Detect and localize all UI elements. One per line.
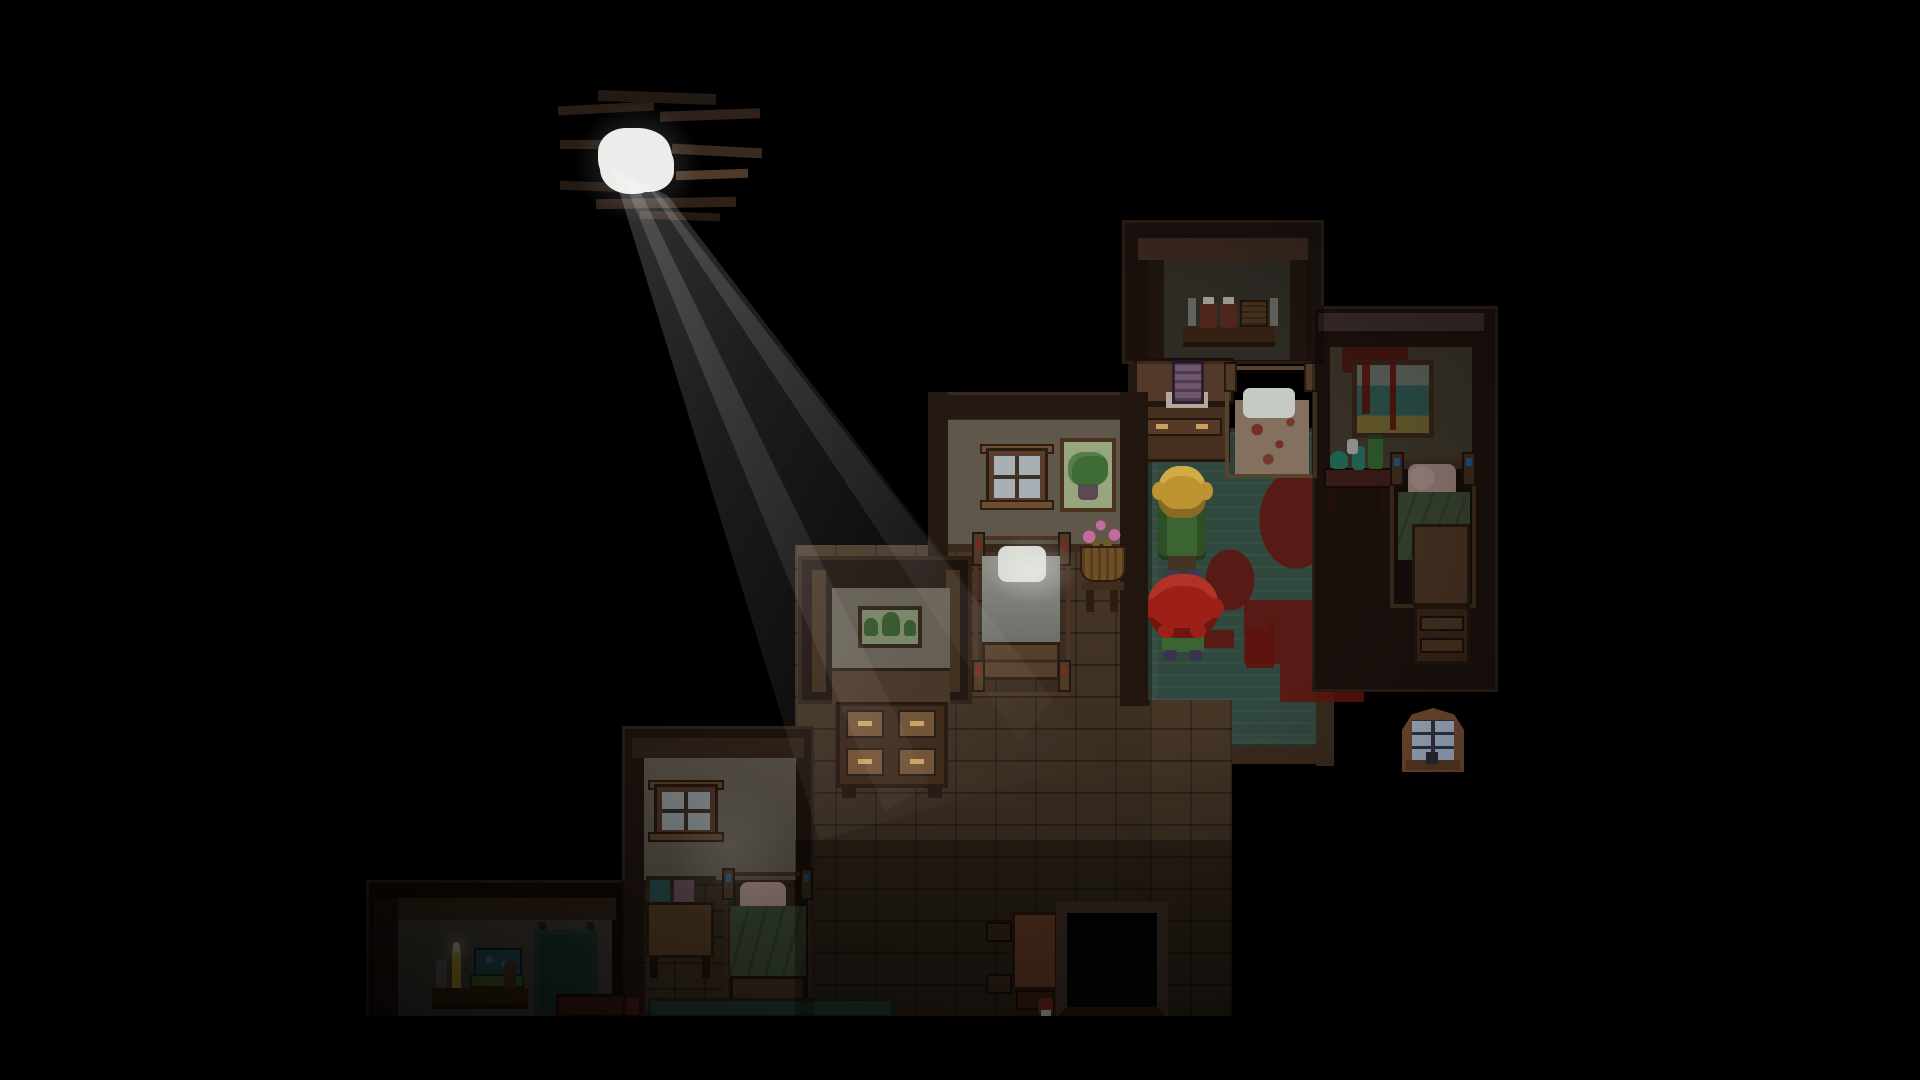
desk-foot-right: [928, 788, 942, 798]
flower-basket: [1080, 546, 1126, 582]
stair-opening: [1056, 902, 1168, 1018]
bloody-bed-post-tr: [1304, 362, 1317, 392]
white-bed-tick-br: [1062, 666, 1067, 675]
red-shoe-right: [1189, 650, 1202, 660]
wall-shelf-board: [1183, 326, 1275, 347]
flower-stand-top: [1082, 582, 1124, 590]
bed-f-tick-tl: [726, 874, 731, 882]
small-red-table: [1012, 912, 1058, 990]
green-bottle-tall: [1368, 435, 1383, 469]
shelf-bottle-right: [504, 962, 516, 988]
carpet-strip: [648, 998, 894, 1018]
towel-table-leg-r: [702, 958, 710, 978]
roof-hole-light: [598, 128, 672, 192]
right-nightstand-drawer-2: [1420, 638, 1464, 653]
alcove-post-left: [812, 570, 826, 692]
bottle-table-leg-l: [1328, 488, 1336, 514]
window-d-sill-bottom: [980, 500, 1054, 510]
window-f-pane: [662, 792, 710, 830]
candle-right: [1270, 298, 1278, 326]
blonde-hair-lump-r: [1199, 482, 1213, 500]
game-viewport[interactable]: [0, 0, 1920, 1080]
bloody-bed-pillow: [1243, 388, 1295, 418]
towel-table-leg-l: [650, 958, 658, 978]
shelf-room-lintel: [1138, 238, 1308, 260]
shelf-bottle-left: [436, 960, 447, 988]
jar-2: [1220, 302, 1237, 328]
desk-handle-1: [858, 721, 872, 726]
purple-picture: [1172, 360, 1204, 404]
room-g-roofband: [376, 898, 616, 920]
shelf-room-post-left: [1148, 260, 1164, 360]
bottle-table-top: [1324, 468, 1392, 488]
white-bed-tick-bl: [976, 666, 981, 675]
carpet-edge-wood-h: [1232, 746, 1334, 764]
jar-1: [1200, 302, 1217, 328]
window-room-post-left: [928, 392, 948, 570]
roof-plank-1: [558, 101, 654, 115]
roof-plank-8: [596, 197, 736, 209]
wall-shelf-small-1: [986, 922, 1012, 942]
right-bed-foot-panel: [1412, 524, 1470, 606]
desk-handle-4: [910, 759, 924, 764]
desk-handle-3: [858, 759, 872, 764]
candle-flame: [453, 942, 460, 952]
window-f-sill-bottom: [648, 832, 724, 842]
red-hair-lump-4: [1190, 624, 1206, 638]
book-shelf-board: [432, 988, 528, 1009]
right-nightstand-drawer-1: [1420, 616, 1464, 631]
bed-f-post-tl: [722, 868, 735, 900]
roof-plank-5: [672, 144, 762, 159]
blonde-hair-lump-l: [1152, 482, 1166, 500]
flower-stand-leg-r: [1110, 590, 1118, 612]
jar-1-lid: [1203, 297, 1214, 304]
white-bed-foot-panel: [982, 642, 1060, 680]
window-d-pane: [994, 456, 1040, 498]
towel-table: [646, 902, 714, 958]
right-bed-post-tick-l: [1394, 458, 1400, 466]
roof-plank-3: [660, 108, 760, 121]
room-g-post-left: [374, 898, 398, 1018]
bed-f-post-tr: [800, 868, 813, 900]
jar-2-lid: [1223, 297, 1234, 304]
room-f-roofband: [632, 738, 804, 758]
painting-blood-drip-1: [1362, 362, 1370, 414]
white-bed-tick-tr: [1062, 540, 1067, 549]
dresser-handle-2: [1196, 424, 1208, 429]
tree-painting-tree-2: [882, 612, 900, 636]
bottom-black-bar: [0, 1016, 1920, 1080]
plant-painting-pot: [1078, 484, 1098, 500]
white-bed-pillow: [998, 546, 1046, 582]
white-bed-tick-tl: [976, 540, 981, 549]
flower-stand-leg-l: [1086, 590, 1094, 612]
dresser-handle-1: [1156, 424, 1168, 429]
shelf-room-post-right: [1290, 260, 1306, 360]
right-bed-post-tick-r: [1466, 458, 1472, 466]
teal-bottle-round: [1330, 451, 1348, 469]
dark-red-bed-edge: [556, 994, 642, 1018]
dormer-notch: [1426, 752, 1438, 764]
painting-room-roofband: [1318, 313, 1484, 331]
wicker-basket: [1240, 300, 1268, 327]
desk-foot-left: [842, 788, 856, 798]
bloody-bed-post-tl: [1224, 362, 1237, 392]
roof-plank-9: [640, 211, 720, 222]
bottle-table-leg-r: [1380, 488, 1388, 514]
red-hair-lump-3: [1158, 624, 1174, 638]
roof-plank-6: [676, 169, 748, 181]
desk-top-band: [832, 668, 950, 704]
lit-candle: [452, 950, 461, 988]
white-bed-post-bl: [972, 660, 985, 692]
wall-shelf-small-2: [986, 974, 1012, 994]
white-jar: [1347, 439, 1358, 454]
bed-f-blanket: [730, 906, 806, 976]
red-hair-lump-2: [1206, 598, 1224, 618]
red-shoe-left: [1164, 650, 1177, 660]
candle-left: [1188, 298, 1196, 326]
desk-handle-2: [910, 721, 924, 726]
window-room-roofband: [928, 392, 1132, 422]
painting-room-lintel: [1320, 331, 1482, 347]
plant-painting-foliage: [1068, 452, 1108, 486]
tree-painting-tree-3: [904, 620, 916, 636]
right-nightstand: [1414, 606, 1470, 664]
bed-f-tick-tr: [804, 874, 809, 882]
tree-painting-tree-1: [864, 618, 878, 636]
white-bed-post-br: [1058, 660, 1071, 692]
painting-blood-drip-2: [1390, 362, 1396, 430]
